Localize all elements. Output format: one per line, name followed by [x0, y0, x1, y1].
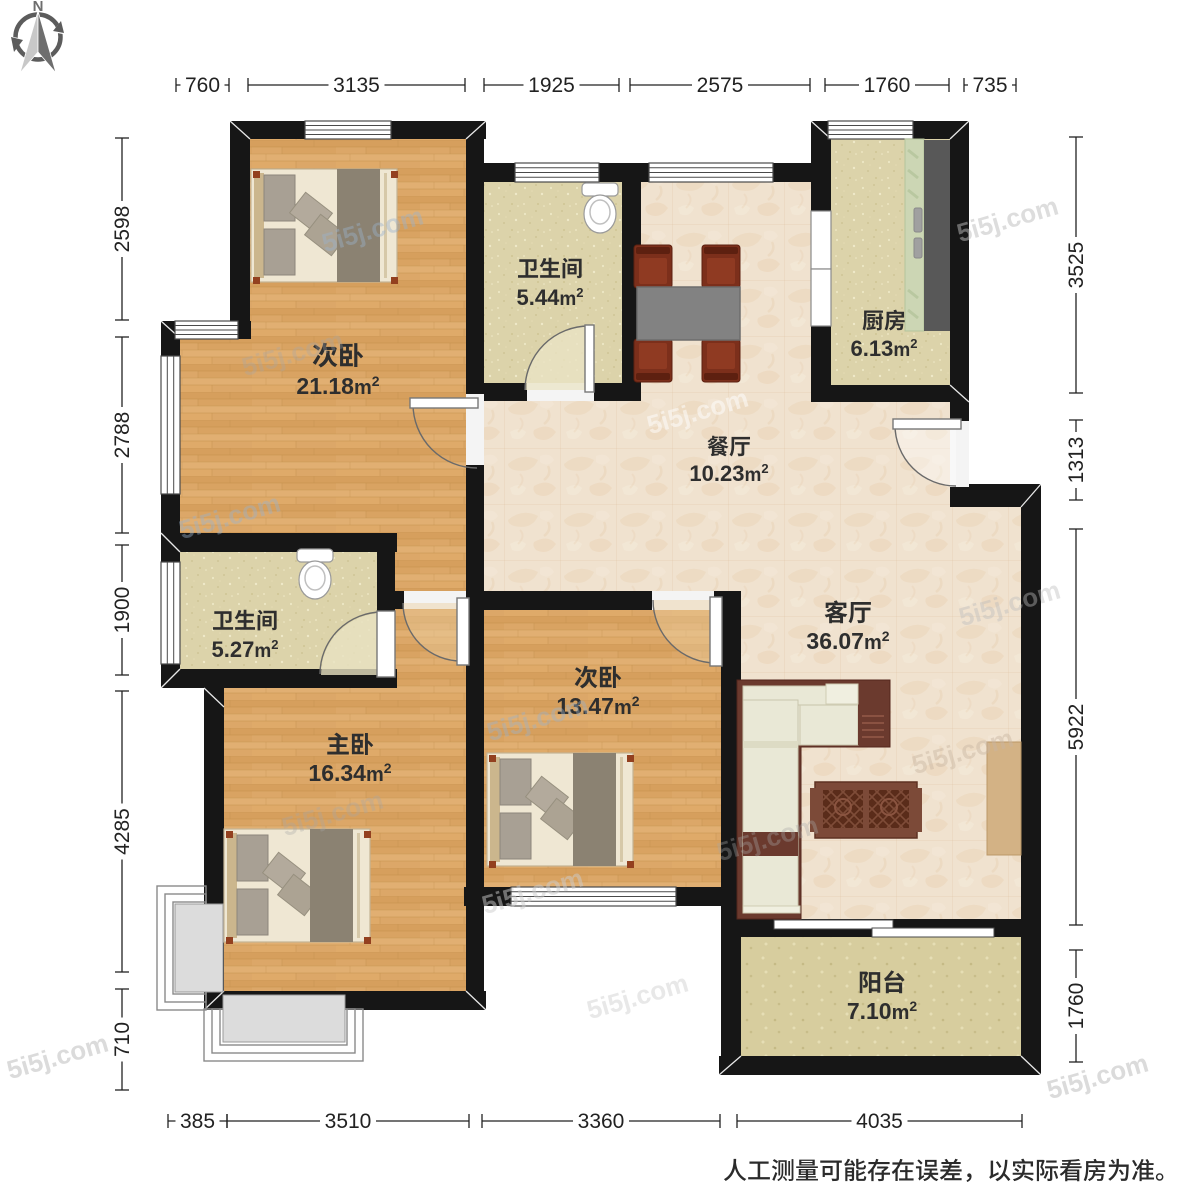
svg-text:1925: 1925 [528, 74, 575, 97]
svg-text:7.10m2: 7.10m2 [847, 998, 918, 1024]
svg-text:3510: 3510 [325, 1110, 372, 1133]
svg-text:1760: 1760 [864, 74, 911, 97]
svg-text:2575: 2575 [697, 74, 744, 97]
svg-text:385: 385 [180, 1110, 215, 1133]
svg-text:2598: 2598 [111, 206, 134, 253]
svg-text:5.27m2: 5.27m2 [212, 637, 279, 662]
svg-text:4035: 4035 [856, 1110, 903, 1133]
svg-text:735: 735 [972, 74, 1007, 97]
svg-text:1760: 1760 [1065, 983, 1088, 1030]
svg-text:5.44m2: 5.44m2 [517, 285, 584, 310]
svg-text:3525: 3525 [1065, 242, 1088, 289]
svg-text:6.13m2: 6.13m2 [851, 336, 918, 361]
svg-text:3360: 3360 [578, 1110, 625, 1133]
svg-text:3135: 3135 [333, 74, 380, 97]
svg-text:710: 710 [111, 1022, 134, 1057]
svg-text:4285: 4285 [111, 808, 134, 855]
svg-text:10.23m2: 10.23m2 [689, 461, 768, 486]
svg-text:16.34m2: 16.34m2 [308, 760, 391, 786]
svg-text:760: 760 [185, 74, 220, 97]
svg-text:N: N [33, 0, 44, 15]
svg-text:1900: 1900 [111, 587, 134, 634]
svg-text:1313: 1313 [1065, 437, 1088, 484]
svg-text:36.07m2: 36.07m2 [806, 628, 889, 654]
svg-text:5922: 5922 [1065, 704, 1088, 751]
svg-text:21.18m2: 21.18m2 [296, 373, 379, 399]
svg-text:2788: 2788 [111, 412, 134, 459]
